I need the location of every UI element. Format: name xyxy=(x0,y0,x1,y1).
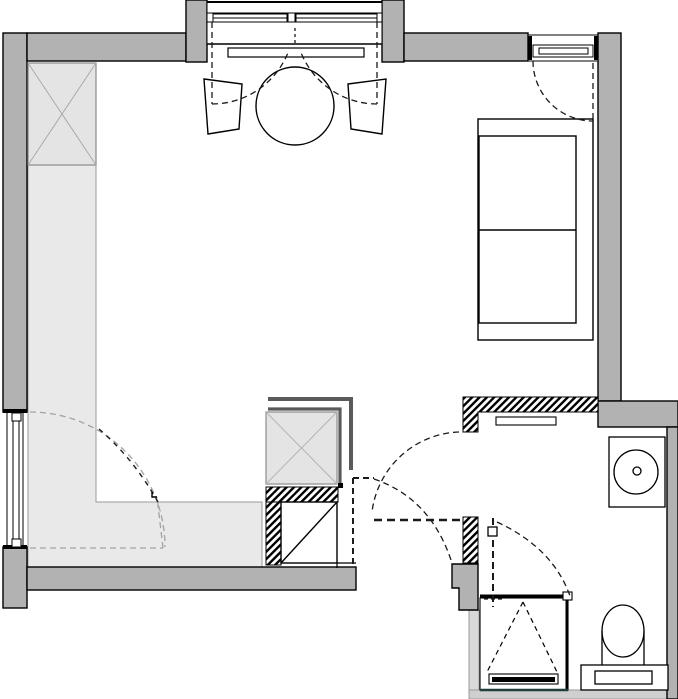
glass-end-block-bottom xyxy=(12,539,21,547)
kitchen-partition-strip xyxy=(266,502,281,565)
bathroom-west-column xyxy=(469,610,479,692)
bottom-wall xyxy=(27,567,356,590)
bathroom-east-wall xyxy=(667,427,678,699)
chair-left xyxy=(204,79,242,134)
left-wall-lower-pier xyxy=(3,547,27,608)
wall-shelf xyxy=(496,417,556,425)
left-window xyxy=(3,409,27,549)
walls xyxy=(3,0,678,699)
bathroom-fixtures xyxy=(480,417,668,690)
bay-window xyxy=(207,2,382,44)
radiator xyxy=(228,48,364,57)
right-window-sash-arc xyxy=(533,61,593,121)
top-wall-right xyxy=(404,33,528,61)
basin-drain xyxy=(633,467,641,475)
floor-plan xyxy=(0,0,678,699)
toilet-bowl xyxy=(602,605,644,657)
bathroom-partition-south xyxy=(463,517,478,563)
shower-glass-corner xyxy=(563,592,572,600)
bathroom-floor-strip xyxy=(469,690,678,699)
bathroom-west-pier xyxy=(452,564,478,610)
toilet xyxy=(581,605,668,690)
door-a-arc xyxy=(372,432,459,512)
entry-arc-emphasis xyxy=(99,429,158,502)
right-wall xyxy=(598,33,621,401)
washbasin xyxy=(609,437,665,507)
bath-door-arc xyxy=(497,522,570,596)
floor-plan-canvas xyxy=(0,0,678,699)
bathroom-partition-north xyxy=(463,397,598,432)
dining-set xyxy=(204,48,386,145)
bay-pier-right xyxy=(382,0,404,62)
left-wall xyxy=(3,33,27,412)
bay-pier-left xyxy=(186,0,207,62)
toilet-cistern-lid xyxy=(595,671,652,684)
bay-opening xyxy=(207,2,382,44)
shower-drain-grate xyxy=(492,677,555,682)
sofa-bed xyxy=(478,119,593,340)
wardrobe xyxy=(28,63,96,165)
top-wall-left xyxy=(27,33,186,61)
kitchen-corner-dot xyxy=(338,483,343,488)
chair-right xyxy=(348,79,386,134)
glass-end-block-top xyxy=(12,413,21,421)
kitchen-partition-band xyxy=(266,487,338,502)
bathroom-north-wall xyxy=(598,401,678,427)
top-right-window xyxy=(528,35,598,61)
bath-door-handle xyxy=(488,527,497,536)
round-table xyxy=(256,67,334,145)
